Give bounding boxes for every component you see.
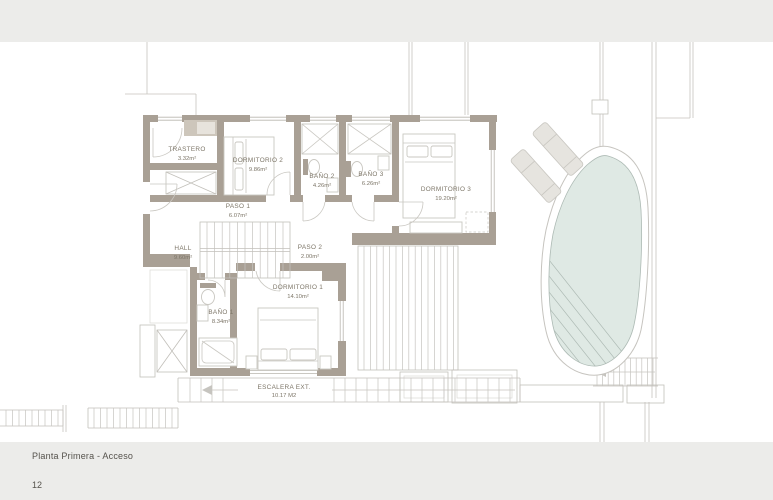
shower-bano-2 bbox=[302, 124, 338, 192]
floor-plan-canvas: TRASTERO 3.32m² DORMITORIO 2 9.86m² BAÑO… bbox=[0, 42, 773, 442]
room-area-hall: 9.60m² bbox=[174, 255, 192, 261]
floor-plan-drawing: TRASTERO 3.32m² DORMITORIO 2 9.86m² BAÑO… bbox=[0, 42, 773, 442]
room-area-bano-1: 8.34m² bbox=[212, 319, 230, 325]
page-number: 12 bbox=[32, 480, 42, 490]
top-margin-band bbox=[0, 0, 773, 42]
shaft-x-hall bbox=[140, 270, 187, 377]
room-label-dormitorio-3: DORMITORIO 3 bbox=[421, 186, 471, 193]
room-area-dormitorio-3: 19.20m² bbox=[435, 196, 457, 202]
deck-slats bbox=[358, 246, 458, 370]
staircase bbox=[200, 222, 290, 278]
room-area-paso-2: 2.00m² bbox=[301, 254, 319, 260]
planters bbox=[400, 370, 664, 403]
room-label-dormitorio-2: DORMITORIO 2 bbox=[233, 157, 283, 164]
plan-title: Planta Primera - Acceso bbox=[32, 451, 133, 461]
room-label-escalera-ext: ESCALERA EXT. bbox=[258, 384, 311, 391]
room-label-bano-3: BAÑO 3 bbox=[358, 169, 383, 178]
page: TRASTERO 3.32m² DORMITORIO 2 9.86m² BAÑO… bbox=[0, 0, 773, 500]
bed-dormitorio-3 bbox=[403, 134, 488, 233]
room-area-escalera-ext: 10.17 M2 bbox=[272, 393, 297, 399]
room-area-trastero: 3.32m² bbox=[178, 156, 196, 162]
pool-pad bbox=[592, 100, 608, 114]
bed-dormitorio-1 bbox=[246, 308, 331, 370]
footer-band: Planta Primera - Acceso 12 bbox=[0, 442, 773, 500]
room-label-paso-2: PASO 2 bbox=[298, 244, 323, 251]
room-label-bano-1: BAÑO 1 bbox=[208, 307, 233, 316]
room-area-paso-1: 6.07m² bbox=[229, 213, 247, 219]
room-label-dormitorio-1: DORMITORIO 1 bbox=[273, 284, 323, 291]
storage-box bbox=[184, 120, 217, 136]
room-label-trastero: TRASTERO bbox=[168, 146, 205, 153]
bed-dormitorio-2 bbox=[224, 137, 274, 195]
closet-x-trastero bbox=[166, 172, 216, 194]
room-area-bano-2: 4.26m² bbox=[313, 183, 331, 189]
room-label-bano-2: BAÑO 2 bbox=[309, 171, 334, 180]
room-label-paso-1: PASO 1 bbox=[226, 203, 251, 210]
room-label-hall: HALL bbox=[174, 245, 191, 252]
room-area-dormitorio-1: 14.10m² bbox=[287, 294, 309, 300]
room-area-dormitorio-2: 9.86m² bbox=[249, 167, 267, 173]
hatch-strips bbox=[0, 405, 178, 432]
exterior-stair-strip bbox=[178, 378, 520, 402]
room-area-bano-3: 6.26m² bbox=[362, 181, 380, 187]
